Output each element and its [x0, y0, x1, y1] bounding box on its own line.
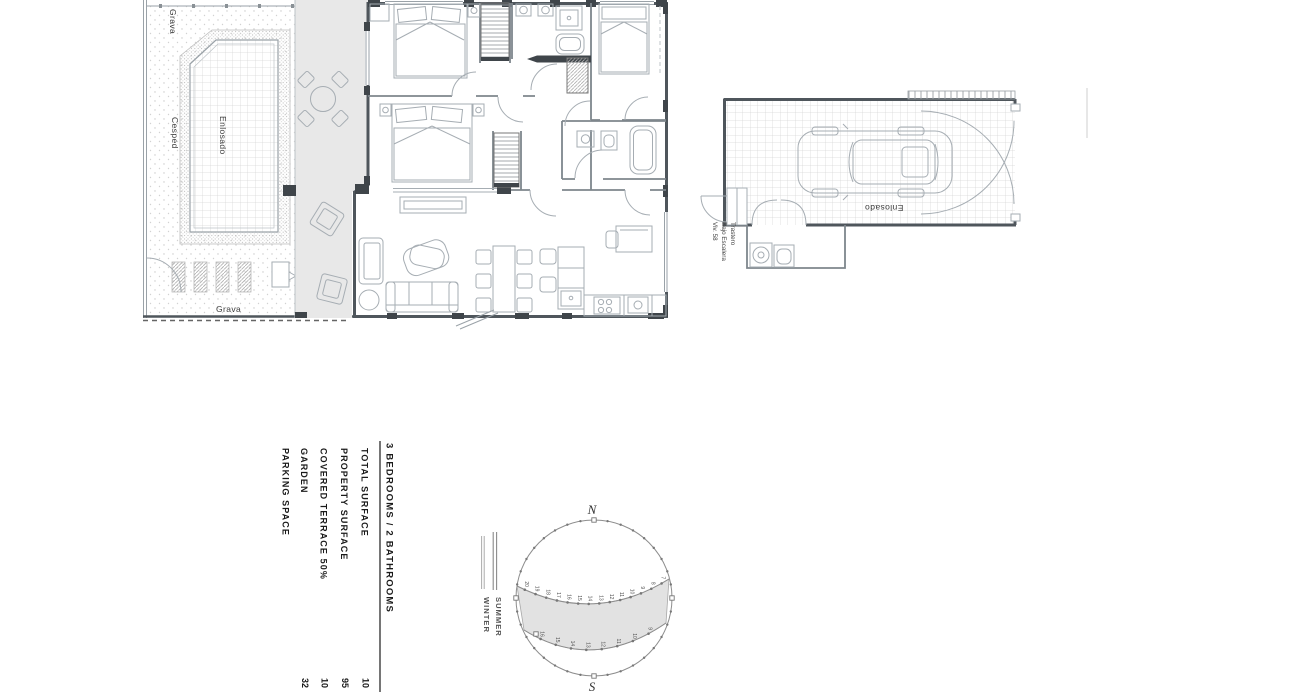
garage-grate-strip [908, 91, 1015, 99]
summary-row-value: 10 [320, 678, 330, 688]
garage-door-jamb-top [1011, 104, 1020, 111]
sun-dot [643, 657, 645, 659]
storage-room [747, 225, 845, 268]
sun-dot [534, 593, 537, 596]
sun-hour-label: 15 [576, 595, 582, 601]
summary-row-label: PROPERTY SURFACE [339, 448, 349, 560]
garage: Enlosado Trastero Bajo Escalera Viv. 58 [701, 91, 1020, 268]
sun-dot [666, 570, 668, 572]
sun-hour-label: 10 [631, 633, 637, 639]
sun-dot [533, 547, 535, 549]
sun-dot [516, 610, 518, 612]
sun-dot [543, 537, 545, 539]
sun-dot [566, 524, 568, 526]
summary-row-label: COVERED TERRACE 50% [319, 448, 329, 580]
garden-gate [272, 262, 289, 287]
sun-hour-label: 8 [649, 582, 655, 585]
sun-dot [523, 588, 526, 591]
sun-hour-label: 18 [544, 589, 550, 595]
wardrobe [567, 58, 588, 93]
garden-left-fence [144, 0, 147, 318]
staircase-upper [481, 3, 509, 61]
sun-hour-label: 11 [615, 639, 621, 644]
garden-label-enlosado: Enlosado [218, 116, 228, 155]
garden-label-cesped: Cesped [170, 117, 180, 149]
sun-dot [545, 596, 548, 599]
summary-row-value: 95 [340, 678, 350, 688]
door-swing-arcs [452, 64, 650, 216]
house [355, 0, 669, 329]
sun-dot [554, 529, 556, 531]
sun-dot [643, 537, 645, 539]
sun-dot [606, 674, 608, 676]
compass-south-label: S [589, 679, 596, 694]
plan-canvas: Grava Cesped Enlosado Grava [0, 0, 1290, 698]
sun-dot [616, 645, 619, 648]
winter-legend-line [482, 536, 485, 589]
sun-dot [525, 558, 527, 560]
compass-north-label: N [587, 502, 598, 517]
sun-dot [647, 632, 650, 635]
sun-dot [539, 638, 542, 641]
sun-diagram: 2019181716151413121110987161514131211109… [482, 502, 675, 694]
garage-label-enlosado: Enlosado [865, 203, 904, 213]
bathroom-1 [516, 4, 584, 54]
terrace-pillar [283, 185, 296, 196]
summary-title: 3 BEDROOMS / 2 BATHROOMS [384, 443, 395, 613]
sun-dot [566, 670, 568, 672]
summary-row-label: TOTAL SURFACE [360, 448, 370, 537]
bathroom-2 [577, 126, 656, 174]
sun-dot [608, 601, 611, 604]
terrace-fill [295, 0, 368, 318]
bedroom-2 [599, 4, 649, 74]
sun-dot [554, 664, 556, 666]
sun-dot [587, 603, 590, 606]
sun-hour-label: 11 [618, 592, 624, 597]
sun-hour-label: 13 [597, 595, 603, 601]
sun-dot [520, 623, 522, 625]
sun-dot [632, 529, 634, 531]
sun-dot [619, 670, 621, 672]
summary-row-label: GARDEN [299, 448, 309, 494]
sun-hour-label: 20 [523, 581, 529, 587]
sun-dot [666, 623, 668, 625]
terrace-pillar-2 [295, 312, 307, 318]
sun-dot [579, 674, 581, 676]
dining-area [476, 246, 532, 312]
sun-dot [600, 648, 603, 651]
sun-hour-label: 15 [554, 637, 560, 643]
sun-dot [516, 583, 518, 585]
summer-legend-label: SUMMER [494, 597, 503, 637]
sun-dot [533, 647, 535, 649]
sun-dot [606, 520, 608, 522]
staircase-lower [494, 133, 519, 187]
summary-row-value: 10 [361, 678, 371, 688]
sun-hour-label: 12 [600, 641, 606, 647]
sun-dot [520, 570, 522, 572]
garden-label-grava-bottom: Grava [216, 304, 241, 314]
kitchen [540, 226, 666, 316]
sun-dot [670, 610, 672, 612]
sun-dot [556, 599, 559, 602]
garage-door-jamb-bottom [1011, 214, 1020, 221]
sun-dot [653, 647, 655, 649]
storage-label-line2: Bajo Escalera [720, 222, 727, 261]
sun-dot [619, 599, 622, 602]
sun-dot [566, 601, 569, 604]
summary-row-label: PARKING SPACE [281, 448, 291, 536]
summary-row-value: 32 [300, 678, 310, 688]
storage-label-line3: Viv. 58 [711, 222, 718, 241]
sun-dot [640, 592, 643, 595]
sun-dot [598, 602, 601, 605]
sun-hour-label: 7 [660, 576, 666, 579]
sun-dot [629, 596, 632, 599]
sun-hour-label: 12 [608, 594, 614, 600]
entry-ramp-lines [456, 310, 498, 329]
sun-hour-label: 9 [639, 586, 645, 589]
sun-hour-label: 9 [647, 627, 653, 630]
storage-label-line1: Trastero [729, 222, 736, 246]
sun-dot [653, 547, 655, 549]
sun-dot [660, 558, 662, 560]
sun-hour-label: 16 [566, 594, 572, 600]
sun-hour-label: 19 [534, 586, 540, 592]
bedroom-1 [370, 4, 480, 78]
sun-dot [632, 664, 634, 666]
sun-hour-label: 17 [555, 592, 561, 598]
winter-legend-label: WINTER [482, 597, 491, 633]
summary-panel: 3 BEDROOMS / 2 BATHROOMS TOTAL SURFACE P… [281, 441, 395, 692]
sun-legend: SUMMER WINTER [482, 532, 503, 637]
sun-dot [619, 524, 621, 526]
sun-hour-label: 16 [539, 631, 545, 637]
paved-area-grid [190, 40, 278, 232]
sun-dot [585, 649, 588, 652]
sun-hour-label: 14 [587, 596, 593, 602]
section-marker [527, 56, 537, 63]
floorplan-page: Grava Cesped Enlosado Grava [0, 0, 1290, 698]
sun-dot [570, 647, 573, 650]
sun-hour-label: 10 [629, 589, 635, 595]
sun-dot [543, 657, 545, 659]
sun-hour-label: 14 [569, 641, 575, 647]
bedroom-3 [380, 104, 484, 182]
sun-dot [577, 602, 580, 605]
sun-dot [579, 520, 581, 522]
sun-dot [670, 583, 672, 585]
sun-dot [525, 636, 527, 638]
sun-dot [660, 582, 663, 585]
garden-label-grava-top: Grava [168, 9, 178, 34]
sun-dot [554, 643, 557, 646]
sun-dot [650, 587, 653, 590]
sun-dot [632, 640, 635, 643]
summer-legend-line [493, 532, 496, 590]
sun-dot [660, 636, 662, 638]
sun-hour-label: 13 [584, 642, 590, 648]
